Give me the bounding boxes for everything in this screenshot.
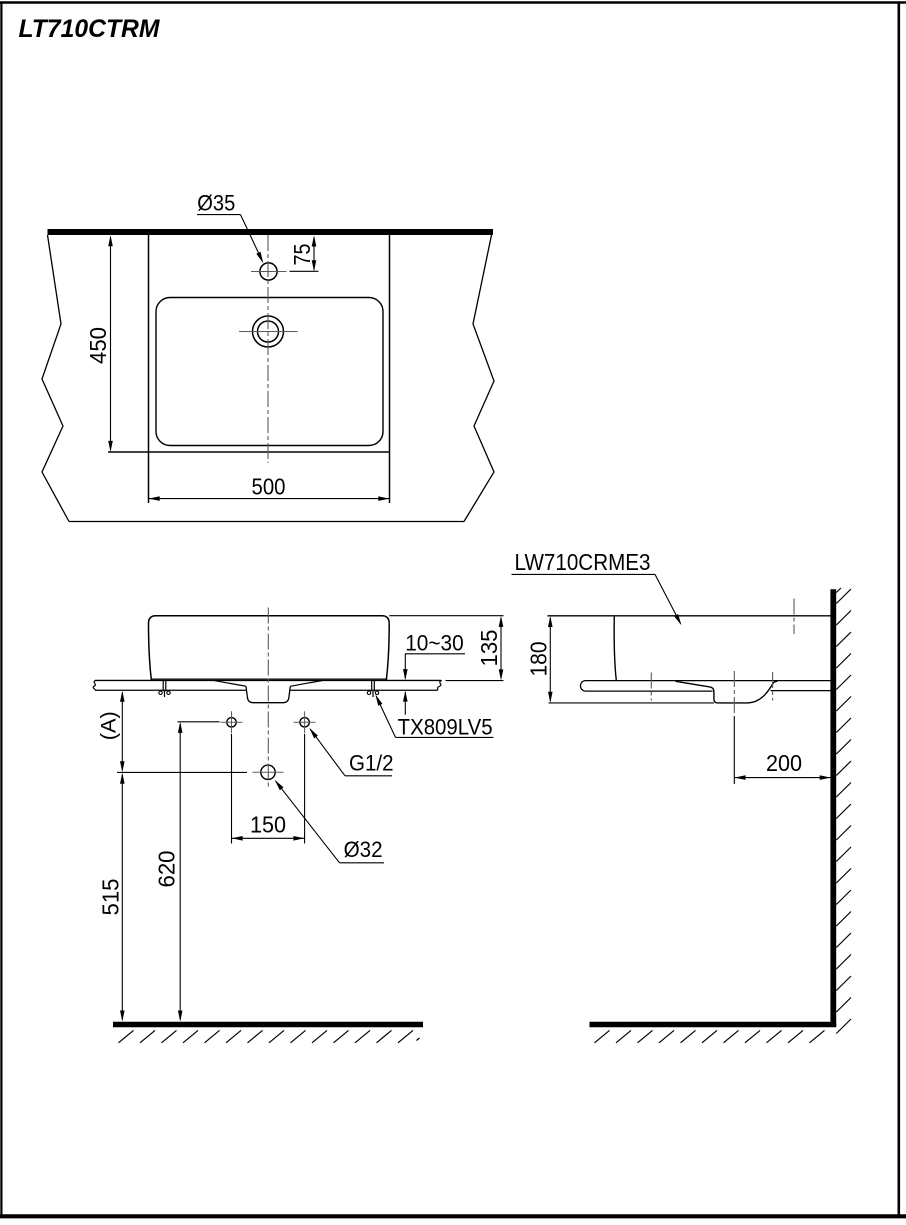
- svg-text:10~30: 10~30: [405, 630, 464, 655]
- svg-text:515: 515: [98, 879, 124, 916]
- svg-text:TX809LV5: TX809LV5: [398, 714, 493, 739]
- svg-text:150: 150: [250, 811, 286, 837]
- svg-text:200: 200: [766, 750, 802, 776]
- svg-text:620: 620: [154, 851, 180, 888]
- svg-text:180: 180: [525, 642, 551, 677]
- svg-text:Ø32: Ø32: [344, 837, 383, 862]
- svg-text:LT710CTRM: LT710CTRM: [19, 15, 161, 43]
- svg-text:LW710CRME3: LW710CRME3: [515, 549, 651, 575]
- svg-text:(A): (A): [97, 711, 120, 740]
- svg-text:135: 135: [476, 630, 502, 667]
- svg-text:Ø35: Ø35: [197, 191, 235, 216]
- svg-text:450: 450: [85, 327, 111, 364]
- svg-text:75: 75: [289, 244, 315, 266]
- svg-text:G1/2: G1/2: [349, 750, 394, 775]
- svg-text:500: 500: [252, 474, 286, 500]
